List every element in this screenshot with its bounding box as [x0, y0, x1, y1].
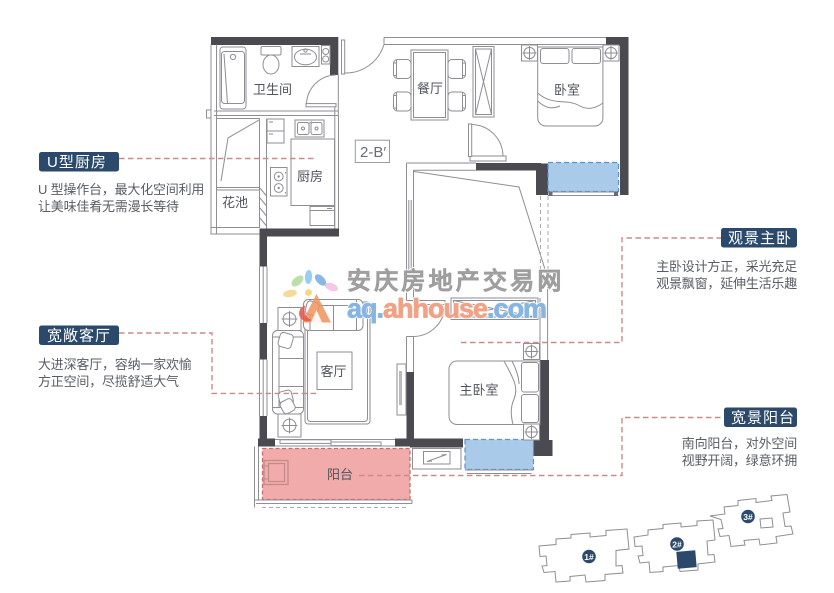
svg-text:主卧室: 主卧室 — [460, 383, 499, 398]
svg-text:大进深客厅，容纳一家欢愉: 大进深客厅，容纳一家欢愉 — [38, 357, 192, 372]
svg-text:视野开阔，绿意环拥: 视野开阔，绿意环拥 — [682, 453, 797, 468]
svg-text:主卧设计方正，采光充足: 主卧设计方正，采光充足 — [656, 259, 797, 274]
svg-text:安庆房地产交易网: 安庆房地产交易网 — [347, 267, 565, 295]
svg-text:2-B′: 2-B′ — [360, 144, 386, 161]
svg-text:U 型操作台，最大化空间利用: U 型操作台，最大化空间利用 — [38, 182, 204, 197]
svg-text:3#: 3# — [743, 512, 753, 522]
svg-text:宽敞客厅: 宽敞客厅 — [47, 328, 111, 345]
svg-text:U型厨房: U型厨房 — [47, 154, 107, 171]
svg-text:aq.ahhouse.com: aq.ahhouse.com — [347, 294, 546, 324]
svg-text:2#: 2# — [672, 540, 682, 550]
svg-text:卧室: 卧室 — [554, 83, 580, 98]
svg-text:1#: 1# — [584, 552, 594, 562]
svg-text:南向阳台，对外空间: 南向阳台，对外空间 — [682, 436, 797, 451]
svg-text:TM: TM — [540, 275, 553, 285]
svg-text:阳台: 阳台 — [327, 467, 353, 482]
svg-text:餐厅: 餐厅 — [417, 81, 443, 96]
svg-text:客厅: 客厅 — [321, 364, 347, 379]
svg-text:观景主卧: 观景主卧 — [728, 230, 792, 247]
svg-text:让美味佳肴无需漫长等待: 让美味佳肴无需漫长等待 — [38, 199, 179, 214]
svg-text:观景飘窗，延伸生活乐趣: 观景飘窗，延伸生活乐趣 — [656, 276, 797, 291]
svg-text:厨房: 厨房 — [297, 169, 323, 184]
svg-text:卫生间: 卫生间 — [253, 82, 292, 97]
svg-text:花池: 花池 — [222, 195, 248, 210]
svg-text:宽景阳台: 宽景阳台 — [731, 410, 795, 427]
svg-text:方正空间，尽揽舒适大气: 方正空间，尽揽舒适大气 — [38, 374, 179, 389]
